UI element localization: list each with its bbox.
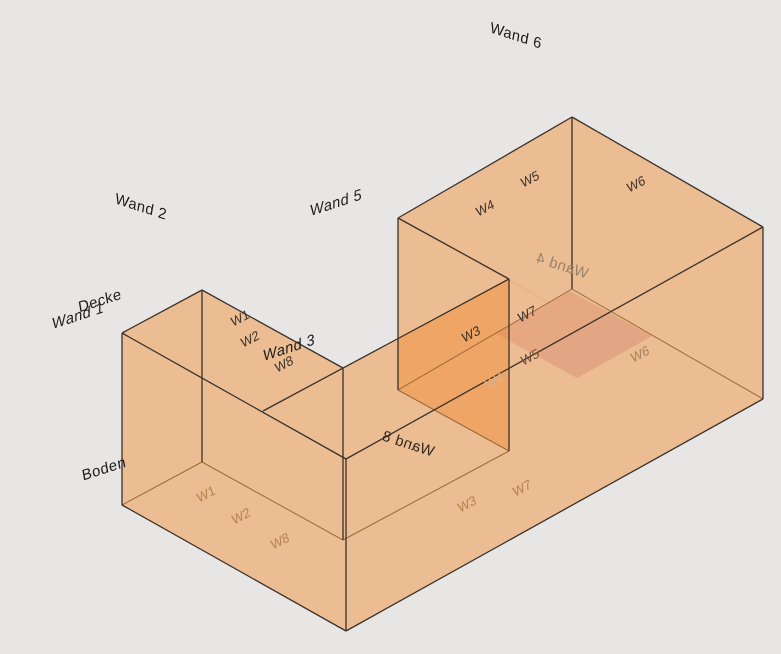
3d-model-viewport[interactable]: Wand 6Wand 2Wand 5DeckeWand 1Wand 3Boden… [0,0,781,654]
building-scene [0,0,781,654]
